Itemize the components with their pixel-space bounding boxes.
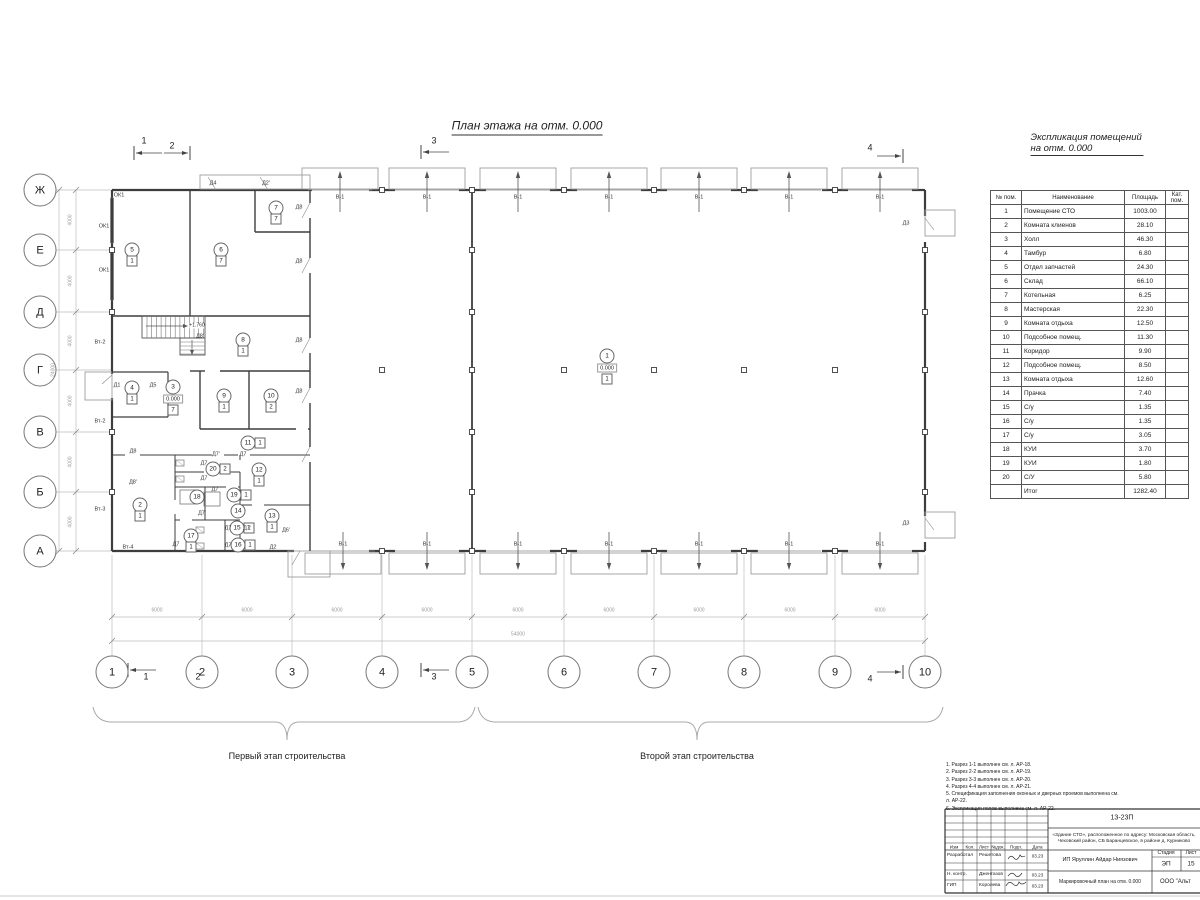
schedule-cell xyxy=(1166,331,1189,345)
tb-col-header: Дата xyxy=(1032,844,1042,849)
gate-label: В-1 xyxy=(876,195,885,201)
dim-side-bay: 4000 xyxy=(69,395,74,406)
schedule-cell: 19 xyxy=(991,457,1022,471)
schedule-cell: Комната отдыха xyxy=(1022,317,1125,331)
schedule-cell: 2 xyxy=(991,219,1022,233)
schedule-cell xyxy=(1166,485,1189,499)
note-line: 4. Разрез 4-4 выполнен см. л. АР-21. xyxy=(946,784,1122,791)
window-label-ОК1: ОК1 xyxy=(99,268,110,274)
schedule-cell: КУИ xyxy=(1022,443,1125,457)
schedule-cell: Тамбур xyxy=(1022,247,1125,261)
gate-label: В-1 xyxy=(423,195,432,201)
schedule-cell: 6 xyxy=(991,275,1022,289)
notes-list: 1. Разрез 1-1 выполнен см. л. АР-18.2. Р… xyxy=(946,762,1122,813)
schedule-cell xyxy=(1166,457,1189,471)
gate-label: В-1 xyxy=(785,542,794,548)
room-schedule-table: № пом.НаименованиеПлощадьКат. пом. 1Поме… xyxy=(990,190,1189,499)
schedule-row: 14Прачка7.40 xyxy=(991,387,1189,401)
tb-role: Разработал xyxy=(947,853,973,858)
gate-label: В-1 xyxy=(605,542,614,548)
stair-elevation-label: +1.760 xyxy=(189,324,204,329)
floor-type-mark: 1 xyxy=(127,394,138,405)
door-label-Д8: Д8 xyxy=(296,205,303,211)
floor-type-mark: 1 xyxy=(219,402,230,413)
tb-date: 03.23 xyxy=(1032,884,1044,889)
schedule-cell: 3 xyxy=(991,233,1022,247)
axis-bubble-А: А xyxy=(24,535,57,568)
room-number-1: 1 xyxy=(600,349,615,364)
dim-bay: 6000 xyxy=(784,609,795,614)
section-mark-1: 1 xyxy=(141,137,146,146)
gate-label: В-1 xyxy=(695,195,704,201)
floor-type-mark: 1 xyxy=(602,374,613,385)
dim-bay: 6000 xyxy=(693,609,704,614)
window-label-ОК1: ОК1 xyxy=(114,193,125,199)
schedule-row: 4Тамбур6.80 xyxy=(991,247,1189,261)
axis-bubble-Е: Е xyxy=(24,234,57,267)
schedule-cell xyxy=(1166,317,1189,331)
stage-value: ЭП xyxy=(1161,861,1170,868)
room-number-14: 14 xyxy=(231,504,246,519)
tb-date: 03.23 xyxy=(1032,873,1044,878)
door-label-Д7: Д7 xyxy=(212,487,219,493)
schedule-cell xyxy=(1166,401,1189,415)
schedule-cell xyxy=(1166,233,1189,247)
schedule-cell: 6.80 xyxy=(1125,247,1166,261)
room-number-3: 3 xyxy=(166,380,181,395)
schedule-col-3: Кат. пом. xyxy=(1166,191,1189,205)
dim-bay: 6000 xyxy=(421,609,432,614)
dim-side-bay: 4000 xyxy=(69,335,74,346)
dim-bay: 6000 xyxy=(241,609,252,614)
tb-col-header: Подп. xyxy=(1010,844,1022,849)
door-label-Д7: Д7 xyxy=(225,526,232,532)
project-code: 13-23П xyxy=(1111,815,1134,822)
schedule-cell: Подсобное помещ. xyxy=(1022,359,1125,373)
schedule-cell: 18 xyxy=(991,443,1022,457)
schedule-cell xyxy=(1166,415,1189,429)
schedule-cell xyxy=(1166,289,1189,303)
schedule-cell: 12.60 xyxy=(1125,373,1166,387)
schedule-cell: 9 xyxy=(991,317,1022,331)
door-label-Д7: Д7 xyxy=(173,542,180,548)
schedule-cell: 6.25 xyxy=(1125,289,1166,303)
schedule-cell xyxy=(1166,471,1189,485)
schedule-cell xyxy=(1166,261,1189,275)
tb-col-header: Лист xyxy=(979,844,989,849)
tb-name: Джентазов xyxy=(979,872,1003,877)
schedule-cell xyxy=(1166,205,1189,219)
schedule-title: Экспликация помещений на отм. 0.000 xyxy=(1031,132,1144,156)
floor-type-mark: 2 xyxy=(266,402,277,413)
tb-date: 03.23 xyxy=(1032,854,1044,859)
floor-type-mark: 7 xyxy=(271,214,282,225)
schedule-row: 12Подсобное помещ.8.50 xyxy=(991,359,1189,373)
vent-label-Вт-2: Вт-2 xyxy=(95,419,106,425)
schedule-cell: 1282.40 xyxy=(1125,485,1166,499)
floor-type-mark: 1 xyxy=(267,522,278,533)
doc-title: Маркировочный план на отм. 0.000 xyxy=(1059,879,1141,885)
schedule-cell: Помещение СТО xyxy=(1022,205,1125,219)
schedule-cell: 5.80 xyxy=(1125,471,1166,485)
schedule-cell xyxy=(1166,303,1189,317)
schedule-col-0: № пом. xyxy=(991,191,1022,205)
gate-label: В-1 xyxy=(605,195,614,201)
dim-total: 54000 xyxy=(511,633,525,638)
schedule-cell: 9.90 xyxy=(1125,345,1166,359)
schedule-row: 1Помещение СТО1003.00 xyxy=(991,205,1189,219)
door-label-Д7': Д7' xyxy=(212,452,220,458)
room-number-18: 18 xyxy=(190,490,205,505)
gate-label: В-1 xyxy=(423,542,432,548)
company-name: ООО "Альт xyxy=(1160,879,1191,885)
note-line: 2. Разрез 2-2 выполнен см. л. АР-19. xyxy=(946,769,1122,776)
section-mark-1: 1 xyxy=(143,673,148,682)
door-label-Д8: Д8 xyxy=(296,259,303,265)
schedule-cell xyxy=(1166,359,1189,373)
stage-label: Стадия xyxy=(1157,850,1174,856)
door-label-Д8: Д8 xyxy=(296,338,303,344)
schedule-cell: 1 xyxy=(991,205,1022,219)
floor-type-mark: 1 xyxy=(135,511,146,522)
dim-side-bay: 4000 xyxy=(69,456,74,467)
gate-label: В-1 xyxy=(876,542,885,548)
schedule-cell xyxy=(1166,443,1189,457)
gate-label: В-1 xyxy=(514,195,523,201)
schedule-cell: 7.40 xyxy=(1125,387,1166,401)
room-number-20: 20 xyxy=(206,462,221,477)
section-mark-4: 4 xyxy=(867,675,872,684)
gate-label: В-1 xyxy=(514,542,523,548)
client-name: ИП Яруллин Айдар Ниязович xyxy=(1062,857,1137,863)
axis-bubble-9: 9 xyxy=(819,656,852,689)
project-object: «Здание СТО», расположенное по адресу: М… xyxy=(1049,833,1199,845)
door-label-Д2: Д2 xyxy=(270,545,277,551)
schedule-cell: Склад xyxy=(1022,275,1125,289)
schedule-cell: Подсобное помещ. xyxy=(1022,331,1125,345)
door-label-Д8: Д8 xyxy=(130,449,137,455)
schedule-cell xyxy=(1166,387,1189,401)
schedule-cell: 12 xyxy=(991,359,1022,373)
vent-label-Вт-4: Вт-4 xyxy=(123,545,134,551)
schedule-cell: 13 xyxy=(991,373,1022,387)
schedule-row: 20С/У5.80 xyxy=(991,471,1189,485)
schedule-cell: Мастерская xyxy=(1022,303,1125,317)
door-label-Д2': Д2' xyxy=(262,181,270,187)
schedule-row: 8Мастерская22.30 xyxy=(991,303,1189,317)
schedule-cell: КУИ xyxy=(1022,457,1125,471)
door-label-Д7: Д7 xyxy=(240,452,247,458)
schedule-row: 2Комната клиенов28.10 xyxy=(991,219,1189,233)
schedule-row: 5Отдел запчастей24.30 xyxy=(991,261,1189,275)
floor-type-mark: 1 xyxy=(238,346,249,357)
axis-bubble-1: 1 xyxy=(96,656,129,689)
schedule-row: 18КУИ3.70 xyxy=(991,443,1189,457)
schedule-row: 10Подсобное помещ.11.30 xyxy=(991,331,1189,345)
axis-bubble-10: 10 xyxy=(909,656,942,689)
door-label-Д6': Д6' xyxy=(282,528,290,534)
schedule-cell: 46.30 xyxy=(1125,233,1166,247)
section-mark-3: 3 xyxy=(431,673,436,682)
schedule-cell: 1.35 xyxy=(1125,415,1166,429)
section-mark-2: 2 xyxy=(169,142,174,151)
axis-bubble-4: 4 xyxy=(366,656,399,689)
sheet-number: 15 xyxy=(1187,861,1194,868)
door-label-Д7: Д7 xyxy=(201,461,208,467)
gate-label: В-1 xyxy=(336,195,345,201)
schedule-cell: Коридор xyxy=(1022,345,1125,359)
schedule-cell: 17 xyxy=(991,429,1022,443)
sheet-label: Лист xyxy=(1186,850,1197,856)
door-label-Д7': Д7' xyxy=(243,526,251,532)
gate-label: В-1 xyxy=(339,542,348,548)
floor-type-mark: 7 xyxy=(168,405,179,416)
schedule-total-row: Итог1282.40 xyxy=(991,485,1189,499)
schedule-row: 17С/у3.05 xyxy=(991,429,1189,443)
floor-type-mark: 1 xyxy=(186,542,197,553)
tb-col-header: Кол. xyxy=(965,844,974,849)
room-number-19: 19 xyxy=(227,488,242,503)
note-line: 5. Спецификация заполнения оконных и две… xyxy=(946,791,1122,806)
note-line: 1. Разрез 1-1 выполнен см. л. АР-18. xyxy=(946,762,1122,769)
tb-name: Решетова xyxy=(979,853,1001,858)
door-label-Д3: Д3 xyxy=(903,221,910,227)
dim-side-bay: 4000 xyxy=(69,516,74,527)
schedule-cell: Холл xyxy=(1022,233,1125,247)
axis-bubble-3: 3 xyxy=(276,656,309,689)
schedule-cell: 1.80 xyxy=(1125,457,1166,471)
elevation-mark: 0.000 xyxy=(163,395,183,404)
section-mark-3: 3 xyxy=(431,137,436,146)
door-label-Д5: Д5 xyxy=(150,383,157,389)
schedule-cell: 28.10 xyxy=(1125,219,1166,233)
door-label-Д7': Д7' xyxy=(198,511,206,517)
door-label-Д8': Д8' xyxy=(196,334,204,340)
schedule-cell xyxy=(1166,429,1189,443)
dim-side-bay: 4000 xyxy=(69,275,74,286)
elevation-mark: 0.000 xyxy=(597,364,617,373)
schedule-cell: 11 xyxy=(991,345,1022,359)
dim-bay: 6000 xyxy=(874,609,885,614)
schedule-cell xyxy=(1166,345,1189,359)
stage1-label: Первый этап строительства xyxy=(229,751,346,761)
schedule-row: 19КУИ1.80 xyxy=(991,457,1189,471)
schedule-cell: Прачка xyxy=(1022,387,1125,401)
schedule-cell xyxy=(1166,275,1189,289)
schedule-cell: 12.50 xyxy=(1125,317,1166,331)
gate-label: В-1 xyxy=(695,542,704,548)
schedule-cell: С/у xyxy=(1022,401,1125,415)
door-label-Д7: Д7 xyxy=(225,543,232,549)
schedule-cell: С/у xyxy=(1022,429,1125,443)
schedule-cell: 22.30 xyxy=(1125,303,1166,317)
schedule-cell: 24.30 xyxy=(1125,261,1166,275)
axis-bubble-8: 8 xyxy=(728,656,761,689)
schedule-cell xyxy=(1166,247,1189,261)
door-label-Д4: Д4 xyxy=(210,181,217,187)
note-line: 3. Разрез 3-3 выполнен см. л. АР-20. xyxy=(946,777,1122,784)
schedule-cell: 20 xyxy=(991,471,1022,485)
schedule-cell: 8 xyxy=(991,303,1022,317)
door-label-Д8': Д8' xyxy=(129,480,137,486)
dim-bay: 6000 xyxy=(151,609,162,614)
note-line: 6. Экспликация полов выполнена см. л. АР… xyxy=(946,806,1122,813)
schedule-cell: 4 xyxy=(991,247,1022,261)
door-label-Д3: Д3 xyxy=(903,521,910,527)
schedule-col-1: Наименование xyxy=(1022,191,1125,205)
schedule-cell xyxy=(1166,219,1189,233)
schedule-cell: Комната отдыха xyxy=(1022,373,1125,387)
axis-bubble-6: 6 xyxy=(548,656,581,689)
door-label-Д7: Д7 xyxy=(201,476,208,482)
schedule-cell xyxy=(991,485,1022,499)
room-number-11: 11 xyxy=(241,436,256,451)
schedule-cell: Комната клиенов xyxy=(1022,219,1125,233)
tb-col-header: Изм xyxy=(950,844,959,849)
schedule-cell: 8.50 xyxy=(1125,359,1166,373)
vent-label-Вт-3: Вт-3 xyxy=(95,507,106,513)
dim-bay: 6000 xyxy=(603,609,614,614)
schedule-cell: 16 xyxy=(991,415,1022,429)
schedule-cell: 11.30 xyxy=(1125,331,1166,345)
schedule-cell: 3.70 xyxy=(1125,443,1166,457)
schedule-cell: 15 xyxy=(991,401,1022,415)
schedule-row: 7Котельная6.25 xyxy=(991,289,1189,303)
drawing-sheet: План этажа на отм. 0.000 Экспликация пом… xyxy=(0,0,1200,900)
schedule-cell: 1003.00 xyxy=(1125,205,1166,219)
schedule-col-2: Площадь xyxy=(1125,191,1166,205)
dim-side-total: 24000 xyxy=(52,363,57,377)
schedule-body: 1Помещение СТО1003.002Комната клиенов28.… xyxy=(991,205,1189,499)
schedule-cell: С/у xyxy=(1022,415,1125,429)
schedule-row: 9Комната отдыха12.50 xyxy=(991,317,1189,331)
axis-bubble-2: 2 xyxy=(186,656,219,689)
window-label-ОК1: ОК1 xyxy=(99,224,110,230)
axis-bubble-7: 7 xyxy=(638,656,671,689)
schedule-cell: 66.10 xyxy=(1125,275,1166,289)
floor-type-mark: 1 xyxy=(254,476,265,487)
schedule-row: 11Коридор9.90 xyxy=(991,345,1189,359)
tb-col-header: №док. xyxy=(991,844,1004,849)
schedule-cell: Отдел запчастей xyxy=(1022,261,1125,275)
schedule-cell: 1.35 xyxy=(1125,401,1166,415)
axis-bubble-Д: Д xyxy=(24,296,57,329)
schedule-row: 6Склад66.10 xyxy=(991,275,1189,289)
section-mark-4: 4 xyxy=(867,144,872,153)
schedule-cell: 14 xyxy=(991,387,1022,401)
tb-role: ГИП xyxy=(947,883,957,888)
floor-type-mark: 7 xyxy=(216,256,227,267)
door-label-Д1: Д1 xyxy=(114,383,121,389)
axis-bubble-Ж: Ж xyxy=(24,174,57,207)
plan-title: План этажа на отм. 0.000 xyxy=(452,119,603,136)
vent-label-Вт-2: Вт-2 xyxy=(95,340,106,346)
schedule-header: № пом.НаименованиеПлощадьКат. пом. xyxy=(991,191,1189,205)
axis-bubble-В: В xyxy=(24,416,57,449)
schedule-row: 3Холл46.30 xyxy=(991,233,1189,247)
dim-side-bay: 4000 xyxy=(69,214,74,225)
axis-bubble-5: 5 xyxy=(456,656,489,689)
floor-type-mark: 1 xyxy=(127,256,138,267)
tb-name: Королева xyxy=(979,883,1000,888)
schedule-cell: 10 xyxy=(991,331,1022,345)
schedule-row: 13Комната отдыха12.60 xyxy=(991,373,1189,387)
schedule-cell: Итог xyxy=(1022,485,1125,499)
dim-bay: 6000 xyxy=(331,609,342,614)
tb-role: Н. контр. xyxy=(947,872,967,877)
schedule-cell: С/У xyxy=(1022,471,1125,485)
schedule-cell: 5 xyxy=(991,261,1022,275)
gate-label: В-1 xyxy=(785,195,794,201)
floor-type-mark: 2 xyxy=(220,464,231,475)
schedule-row: 16С/у1.35 xyxy=(991,415,1189,429)
room-number-16: 16 xyxy=(231,538,246,553)
door-label-Д8: Д8 xyxy=(296,389,303,395)
stage2-label: Второй этап строительства xyxy=(640,751,754,761)
axis-bubble-Б: Б xyxy=(24,476,57,509)
section-mark-2: 2 xyxy=(195,673,200,682)
floor-type-mark: 1 xyxy=(255,438,266,449)
floor-type-mark: 1 xyxy=(245,540,256,551)
dim-bay: 6000 xyxy=(512,609,523,614)
schedule-cell: 3.05 xyxy=(1125,429,1166,443)
schedule-cell: 7 xyxy=(991,289,1022,303)
floor-type-mark: 1 xyxy=(241,490,252,501)
schedule-row: 15С/у1.35 xyxy=(991,401,1189,415)
schedule-cell xyxy=(1166,373,1189,387)
schedule-cell: Котельная xyxy=(1022,289,1125,303)
